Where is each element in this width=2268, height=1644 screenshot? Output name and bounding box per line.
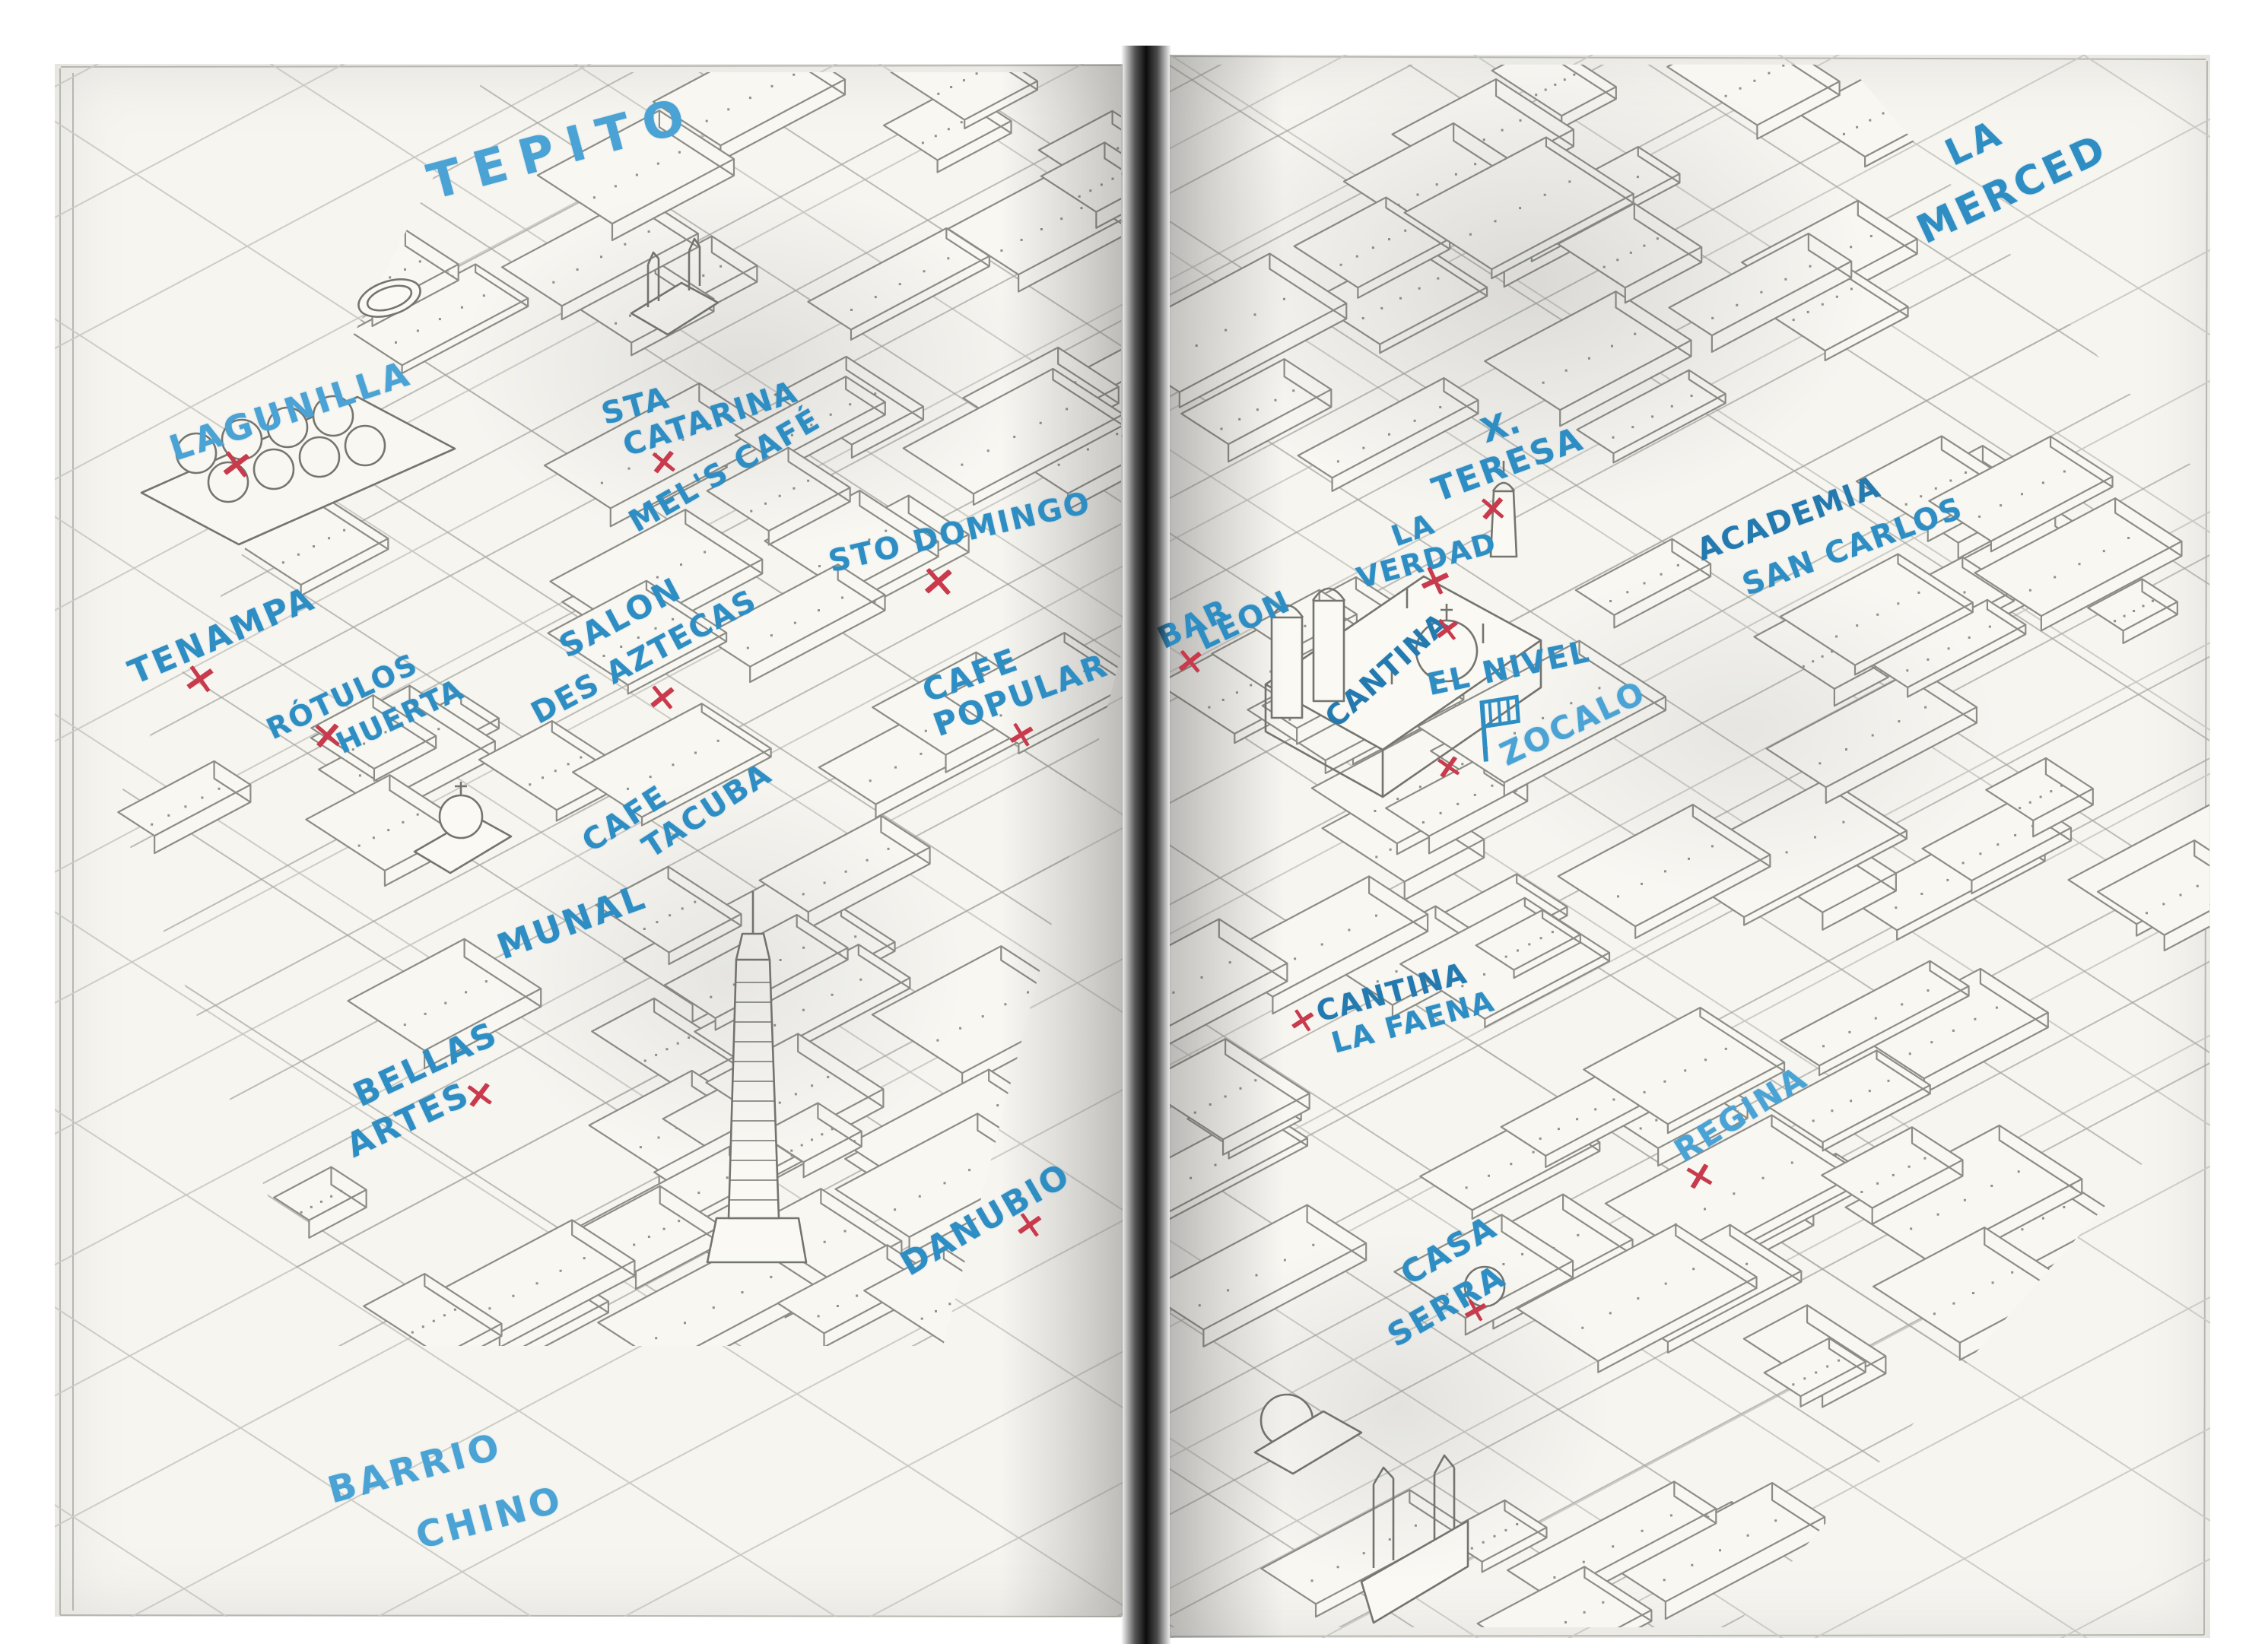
red-x-mark: ✕ <box>644 675 679 721</box>
red-x-mark: ✕ <box>646 440 680 484</box>
red-x-mark: ✕ <box>216 440 256 490</box>
red-x-mark: ✕ <box>918 557 957 608</box>
red-x-mark: ✕ <box>461 1072 497 1119</box>
red-x-mark: ✕ <box>1476 487 1508 531</box>
book-spread-photo: TEPITOLAGUNILLASTACATARINAMEL'S CAFÉSTO … <box>0 0 2268 1644</box>
red-x-mark: ✕ <box>310 713 345 760</box>
red-x-mark: ✕ <box>1431 609 1463 649</box>
red-x-mark: ✕ <box>1173 640 1206 684</box>
book-gutter <box>1121 46 1171 1644</box>
flag-icon <box>1472 693 1530 766</box>
